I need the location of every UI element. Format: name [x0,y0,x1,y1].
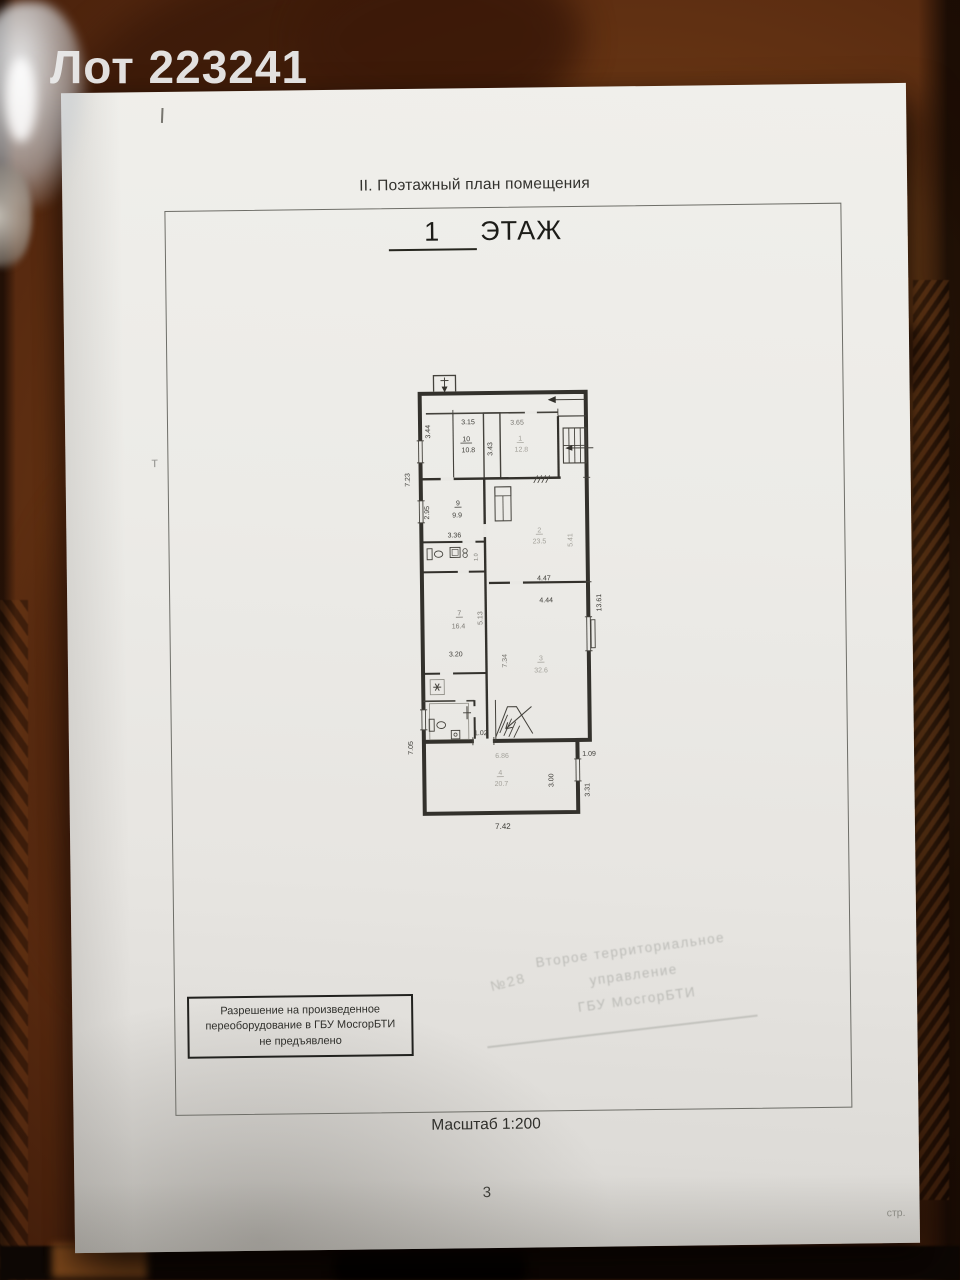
plan-label: 6.86 [495,753,509,760]
plan-label: 7.05 [408,741,415,755]
section-title: II. Поэтажный план помещения [137,172,812,198]
permission-stamp-box: Разрешение на произведенное переоборудов… [187,994,414,1059]
plan-label: 4.47 [537,575,551,582]
glass-highlight [6,58,36,142]
staircase-mid-icon [495,706,532,737]
plan-label: 13.61 [596,594,603,612]
exterior-walls [420,392,591,814]
plan-label: 3.36 [448,532,462,539]
plan-label: 3.00 [548,773,555,787]
entry-notch-icon [433,375,455,392]
plan-label: 3.43 [487,442,494,456]
plan-label: 7.42 [495,822,511,831]
bathroom-icons [429,703,471,740]
floor-plan-drawing: 3.153.653.441010.83.43112.87.232.9599.92… [399,362,617,843]
plan-label: 5.13 [477,611,484,625]
plan-label: 1 [518,436,522,443]
dark-object [335,1250,525,1280]
plan-label: 12.8 [514,447,528,454]
entry-arrow-icon [548,396,585,403]
photo-scene: т II. Поэтажный план помещения 1ЭТАЖ [0,0,960,1280]
plan-label: 10.8 [461,447,475,454]
page-number: 3 [149,1180,824,1205]
plan-label: 1.0 [474,553,480,561]
plan-label: 3.15 [461,419,475,426]
plan-label: 5.41 [567,533,574,547]
sink-icon [450,547,467,557]
plan-label: 3.31 [584,783,591,797]
document-sheet: т II. Поэтажный план помещения 1ЭТАЖ [61,83,920,1253]
plan-label: 3.20 [449,651,463,658]
plan-label: 2 [537,527,541,534]
table-inlay-right [913,280,949,1200]
plan-label: 9.9 [452,512,462,519]
plan-label: 16.4 [452,623,466,630]
plan-label: 7.23 [405,473,412,487]
plan-label: 1.09 [582,751,596,758]
plan-label: 7 [457,610,461,617]
stamp-line: не предъявлено [189,1033,411,1051]
plan-label: 23.5 [533,538,547,545]
window-icons [417,439,597,783]
interior-walls [420,412,590,746]
plan-label: 3.65 [510,420,524,427]
plan-label: 10 [462,436,470,443]
plan-label: 20.7 [495,781,509,788]
plan-label: 2.95 [424,506,431,520]
scale-note: Масштаб 1:200 [148,1112,823,1138]
lot-watermark: Лот 223241 [50,40,308,94]
plan-label: 1.02 [474,730,488,737]
plan-label: 4.44 [539,597,553,604]
plan-label: 3 [539,655,543,662]
plan-label: 3.44 [425,425,432,439]
shaft-icon [495,487,511,521]
pencil-mark: т [151,454,158,470]
plan-label: 4 [498,770,502,777]
page-suffix: стр. [887,1207,906,1219]
parquet-left [0,600,28,1280]
plan-label: 7.34 [502,654,509,668]
hatched-wall [534,475,550,483]
plan-label: 32.6 [534,667,548,674]
shower-icon [430,680,444,695]
pencil-tick-mark [161,108,163,123]
plan-label: 9 [456,500,460,507]
toilet-icon [427,549,443,560]
